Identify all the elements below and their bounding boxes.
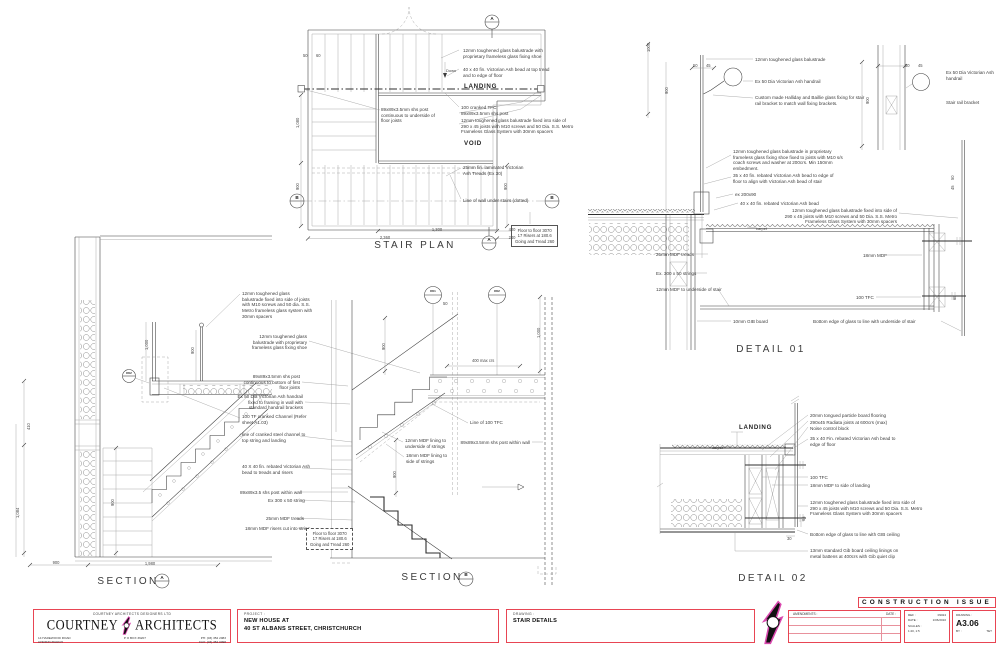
drawing-label: 900 — [110, 499, 115, 506]
drawing-label: Ex 50 Dia Victorian Ash handrail — [946, 70, 994, 81]
scales-label: SCALES : — [908, 624, 922, 628]
drawing-label: line of cranked steel channel to top str… — [242, 432, 305, 443]
drawing-label: 290x45 Radiata joists at 600crs (max) — [810, 420, 887, 426]
drawing-label: B — [550, 195, 553, 201]
architect-box: COURTNEY ARCHITECTS DESIGNERS LTD COURTN… — [33, 609, 231, 643]
drawing-label: 12mm MDF lining to underside of strings — [405, 438, 446, 449]
drawing-label: B — [295, 195, 298, 201]
drawing-label: 100 cranked TFC — [461, 105, 496, 111]
drawing-label: D01 — [430, 290, 436, 294]
drawing-title-box: DRAWING : STAIR DETAILS — [506, 609, 755, 643]
drawing-label: 89x89x3.5mm shs post continuous to botto… — [244, 374, 300, 391]
drawing-label: 50 — [950, 175, 955, 180]
firm-address: 14 HAREWOOD ROADCHRISTCHURCH — [38, 636, 71, 644]
drawing-label: D02 — [126, 372, 132, 376]
ref-label: REF : — [908, 613, 916, 617]
drawing-label: 100 TFC — [810, 475, 828, 481]
drawing-label: Ex 50 Dia Victorian Ash handrail — [755, 79, 821, 85]
landing-label-detail-02: LANDING — [739, 424, 772, 432]
view-title-stair-plan: STAIR PLAN — [374, 240, 456, 253]
drawing-label: 12mm toughened glass balustrade fixed in… — [810, 500, 922, 517]
by-value: TET — [986, 629, 992, 633]
amendment-row — [789, 633, 900, 641]
drawing-label: B — [464, 572, 467, 578]
drawing-label: Ex 300 x 50 string — [268, 498, 305, 504]
drawing-label: 1,000 — [536, 328, 541, 338]
drawing-sheet: 12mm toughened glass balustrade with pro… — [0, 0, 1000, 647]
drawing-label: 30 — [787, 536, 792, 541]
drawing-label: 50 — [443, 301, 448, 306]
annotation-layer: 12mm toughened glass balustrade with pro… — [0, 0, 1000, 647]
drawing-number-box: DRAWING : A3.06 BY : TET — [952, 610, 996, 643]
lightning-logo-icon-large — [760, 600, 786, 645]
amendment-row — [789, 617, 900, 625]
drawing-label: 1,980 — [145, 561, 155, 566]
by-label: BY : — [956, 629, 962, 633]
drawing-number-label: DRAWING : — [956, 613, 992, 617]
drawing-label: 900 — [865, 97, 870, 104]
project-label: PROJECT : — [244, 612, 492, 616]
drawing-label: Floor to floor 3070 17 Risers at 180.6 G… — [306, 528, 353, 550]
drawing-label: 35 x 40 Fin. rebated Victorian Ash bead … — [810, 436, 895, 447]
drawing-label: 900 — [190, 347, 195, 354]
drawing-label: A — [490, 16, 493, 22]
drawing-label: 89x89x3.5mm shs post continuous to under… — [381, 107, 435, 124]
firm-pobox: P O BOX 36207 — [124, 636, 146, 644]
drawing-label: 900 — [295, 183, 300, 190]
date-label: DATE : — [908, 618, 917, 622]
view-title-detail-02: DETAIL 02 — [738, 573, 807, 586]
firm-phone-fax: PH: (03) 352 2083FAX: (03) 352 0098 — [199, 636, 226, 644]
drawing-label: 100 TF cranked Channel (Refer sheet A1.0… — [242, 414, 307, 425]
drawing-label: 900 — [664, 87, 669, 94]
drawing-label: Custom made Halliday and Baillie glass f… — [755, 95, 864, 106]
drawing-label: 12mm toughened glass balustrade fixed in… — [461, 118, 573, 135]
drawing-label: 45 — [918, 63, 923, 68]
drawing-label: 900 — [381, 343, 386, 350]
drawing-label: 1,300 — [432, 227, 442, 232]
drawing-label: 89x89x3.5 shs post within wall — [240, 490, 302, 496]
drawing-label: 12mm toughened glass balustrade — [755, 57, 825, 63]
drawing-label: 1,080 — [295, 118, 300, 128]
drawing-label: A — [160, 575, 163, 581]
drawing-label: 400 max crs — [472, 358, 494, 363]
drawing-label: Bottom edge of glass to line with unders… — [813, 319, 916, 325]
drawing-label: 45 — [706, 63, 711, 68]
drawing-label: Bottom edge of glass to line with GIB ce… — [810, 532, 900, 538]
scales-value: 1:20, 1:5 — [908, 629, 920, 633]
drawing-label: D02 — [494, 290, 500, 294]
drawing-label: Floor to floor 3070 17 Risers at 180.6 G… — [511, 225, 558, 247]
drawing-label: 410 — [26, 423, 31, 430]
drawing-title: STAIR DETAILS — [513, 618, 748, 624]
drawing-label: 12mm MDF to underside of stair — [656, 287, 722, 293]
drawing-label: 12mm toughened glass balustrade with pro… — [463, 48, 543, 59]
drawing-label: Line of 100 TFC — [470, 420, 503, 426]
view-title-detail-01: DETAIL 01 — [736, 344, 805, 357]
drawing-label: 65 — [801, 516, 806, 521]
void-label: VOID — [464, 140, 482, 148]
firm-registered-name: COURTNEY ARCHITECTS DESIGNERS LTD — [34, 612, 230, 616]
drawing-label: 25mm MDF treads — [266, 516, 304, 522]
drawing-label: DRAWING : — [513, 612, 748, 616]
amendment-row — [789, 625, 900, 633]
view-title-section-a: SECTION — [97, 576, 158, 589]
drawing-label: 50 — [905, 63, 910, 68]
firm-name-right: ARCHITECTS — [135, 617, 217, 634]
drawing-label: Line of wall under stairs (dotted) — [463, 198, 528, 204]
drawing-number: A3.06 — [956, 618, 992, 628]
drawing-label: 40 x 40 fin. rebated Victorian Ash bead — [740, 201, 819, 207]
firm-name-left: COURTNEY — [47, 617, 118, 634]
drawing-label: 1000 — [646, 43, 651, 52]
drawing-label: ex 200x90 — [735, 192, 756, 198]
drawing-label: 1,000 — [144, 340, 149, 350]
drawing-label: 40 X 40 fin. rebated Victorian Ash bead … — [242, 464, 310, 475]
drawing-label: 20mm tongued particle board flooring — [810, 413, 886, 419]
drawing-label: Ex 50 Dia Victorian Ash handrail fixed t… — [237, 394, 303, 411]
drawing-label: Ex. 300 x 50 strings — [656, 271, 696, 277]
drawing-label: 35 x 40 fin. rebated Victorian Ash bead … — [733, 173, 834, 184]
drawing-label: 13mm standard Gib board ceiling linings … — [810, 548, 898, 559]
drawing-label: 18mm MDF to side of landing — [810, 483, 870, 489]
drawing-label: 12mm toughened glass balustrade fixed in… — [785, 208, 897, 225]
drawing-label: 900 — [392, 471, 397, 478]
drawing-label: 12mm toughened glass balustrade in propr… — [733, 149, 843, 172]
project-line2: 40 ST ALBANS STREET, CHRISTCHURCH — [244, 626, 492, 632]
drawing-label: 2,360 — [380, 235, 390, 240]
drawing-label: 18mm MDF risers cut into string — [245, 526, 310, 532]
drawing-label: 40 x 40 fin. Victorian Ash bead at top t… — [463, 67, 550, 78]
drawing-label: 89x89x3.5mm shs post within wall — [461, 440, 530, 446]
drawing-label: 900 — [53, 560, 60, 565]
drawing-label: Down — [446, 68, 456, 73]
drawing-label: carpet — [756, 226, 767, 231]
date-value: 1/06/2010 — [933, 618, 946, 622]
drawing-label: 25mm fin. laminated Victorian Ash Treads… — [463, 165, 523, 176]
view-title-section-b: SECTION — [401, 572, 462, 585]
drawing-label: 25mm MDF treads — [656, 252, 694, 258]
drawing-label: 50 — [303, 53, 308, 58]
drawing-label: Noise control block — [810, 426, 849, 432]
drawing-label: 240 — [509, 235, 516, 240]
drawing-label: carpet — [712, 445, 723, 450]
amendments-table: AMENDMENTS : DATE : — [788, 610, 901, 643]
drawing-label: A — [487, 237, 490, 243]
drawing-label: 18mm MDF — [863, 253, 887, 259]
landing-label: LANDING — [464, 83, 497, 91]
drawing-label: 1,084 — [15, 508, 20, 518]
drawing-label: 60 — [316, 53, 321, 58]
amendments-date-header: DATE : — [886, 612, 896, 616]
reference-box: REF :09024 DATE :1/06/2010 SCALES : 1:20… — [904, 610, 950, 643]
drawing-label: 12mm toughened glass balustrade fixed in… — [242, 291, 312, 320]
drawing-label: 100 TFC — [856, 295, 874, 301]
drawing-label: 400 — [509, 227, 516, 232]
construction-issue-banner: CONSTRUCTION ISSUE — [858, 597, 996, 608]
drawing-label: Stair rail bracket — [946, 100, 979, 106]
drawing-label: 18mm MDF lining to side of strings — [406, 453, 447, 464]
drawing-label: 45 — [950, 185, 955, 190]
drawing-label: 12mm toughened glass balustrade with pro… — [252, 334, 307, 351]
amendments-header: AMENDMENTS : — [793, 612, 817, 616]
drawing-label: 10mm GIB board — [733, 319, 768, 325]
project-line1: NEW HOUSE AT — [244, 618, 492, 624]
drawing-label: 65 — [952, 295, 957, 300]
drawing-label: 89x89x3.5mm shs post — [461, 111, 508, 117]
drawing-label: 50 — [693, 63, 698, 68]
project-box: PROJECT : NEW HOUSE AT 40 ST ALBANS STRE… — [237, 609, 499, 643]
lightning-logo-icon — [121, 616, 132, 635]
drawing-label: 900 — [503, 183, 508, 190]
ref-value: 09024 — [938, 613, 946, 617]
